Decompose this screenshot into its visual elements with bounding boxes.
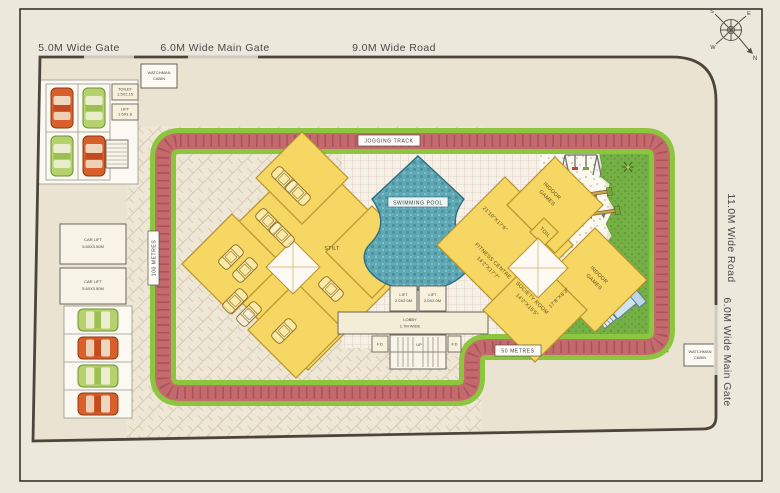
compass-w: W xyxy=(710,45,716,51)
label-lift-2: LIFT xyxy=(428,292,437,297)
label-watchman-2a: WATCHMAN xyxy=(688,349,711,354)
parking-bottom-left xyxy=(64,306,132,418)
car-icon xyxy=(83,88,105,128)
compass-s: S xyxy=(710,9,714,15)
label-lift-2-dim: 2.0X2.0M xyxy=(424,298,441,303)
compass-icon: S E W N xyxy=(710,9,757,62)
site-plan-page: 5.0M Wide Gate 6.0M Wide Main Gate 9.0M … xyxy=(0,0,780,493)
label-gate-main-top: 6.0M Wide Main Gate xyxy=(160,42,269,54)
car-icon xyxy=(78,393,118,415)
label-swimming-pool: SWIMMING POOL xyxy=(393,200,443,206)
label-up: UP xyxy=(416,342,422,347)
parking-top-left: TOILET 1.5X2.15 LIFT 1.5X1.8 xyxy=(38,80,138,184)
label-fd-right: F.D xyxy=(452,342,458,347)
label-lift-1: LIFT xyxy=(399,292,408,297)
label-hundred-metres: 100 METRES xyxy=(152,240,158,277)
label-watchman-1b: CABIN xyxy=(153,76,165,81)
label-lobby: LOBBY xyxy=(403,317,417,322)
label-lift-small-dim: 1.5X1.8 xyxy=(118,112,133,117)
label-car-lift-2-dim: 5.60X3.50M xyxy=(82,286,104,291)
car-icon xyxy=(78,309,118,331)
car-icon xyxy=(51,136,73,176)
label-jogging-track: JOGGING TRACK xyxy=(364,139,413,145)
label-toilet-dim: 1.5X2.15 xyxy=(117,92,134,97)
label-watchman-2b: CABIN xyxy=(694,355,706,360)
watchman-cabin-top: WATCHMAN CABIN xyxy=(141,64,177,88)
label-lift-1-dim: 2.0X2.0M xyxy=(395,298,412,303)
label-fifty-metres: 50 METRES xyxy=(501,349,534,355)
label-fd-left: F.D xyxy=(377,342,383,347)
label-gate-small: 5.0M Wide Gate xyxy=(38,42,119,54)
car-icon xyxy=(83,136,105,176)
label-car-lift-2: CAR LIFT xyxy=(84,279,102,284)
label-car-lift-1-dim: 5.60X3.50M xyxy=(82,244,104,249)
label-watchman-1a: WATCHMAN xyxy=(147,70,170,75)
car-icon xyxy=(78,337,118,359)
label-road-right: 11.0M Wide Road xyxy=(725,193,737,282)
car-icon xyxy=(51,88,73,128)
label-gate-main-right: 6.0M Wide Main Gate xyxy=(721,297,733,406)
car-lift-blocks: CAR LIFT 5.60X3.50M CAR LIFT 5.60X3.50M xyxy=(60,224,126,304)
label-car-lift-1: CAR LIFT xyxy=(84,237,102,242)
label-lobby-width: 1.7M WIDE xyxy=(400,324,421,329)
car-icon xyxy=(78,365,118,387)
watchman-cabin-right: WATCHMAN CABIN xyxy=(684,344,716,366)
label-stilt: STILT xyxy=(324,246,340,252)
compass-e: E xyxy=(747,11,751,17)
site-plan-svg: 5.0M Wide Gate 6.0M Wide Main Gate 9.0M … xyxy=(0,0,780,493)
compass-n: N xyxy=(753,56,757,62)
label-road-top: 9.0M Wide Road xyxy=(352,42,436,54)
